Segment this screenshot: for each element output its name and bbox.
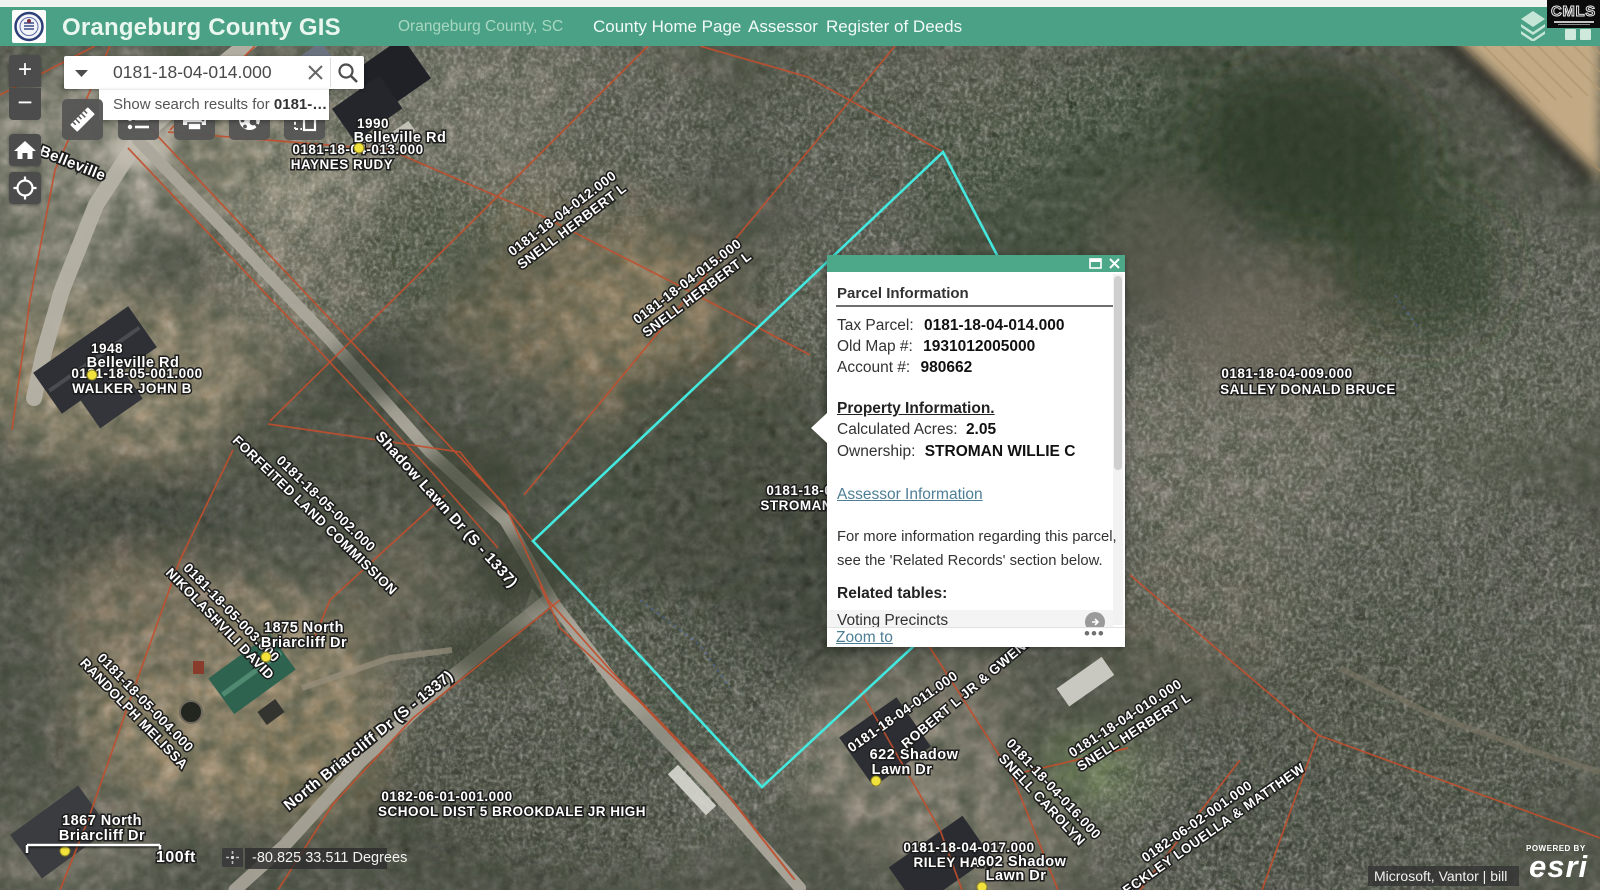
svg-text:0181-18-04-009.000: 0181-18-04-009.000 [1221,366,1352,381]
svg-text:0182-06-01-001.000: 0182-06-01-001.000 [381,789,512,804]
svg-text:Lawn Dr: Lawn Dr [872,762,933,778]
svg-text:Lawn Dr: Lawn Dr [986,868,1047,884]
svg-text:100ft: 100ft [156,849,196,866]
svg-text:HAYNES RUDY: HAYNES RUDY [291,157,394,172]
svg-text:Briarcliff Dr: Briarcliff Dr [59,828,145,844]
svg-text:1867 North: 1867 North [62,813,142,829]
svg-text:Briarcliff Dr: Briarcliff Dr [261,635,347,651]
svg-text:1875 North: 1875 North [264,620,344,636]
svg-text:SALLEY DONALD BRUCE: SALLEY DONALD BRUCE [1220,382,1396,397]
svg-text:0181-18-04-017.000: 0181-18-04-017.000 [903,840,1034,855]
svg-text:SCHOOL DIST 5 BROOKDALE JR HIG: SCHOOL DIST 5 BROOKDALE JR HIGH [378,804,646,819]
svg-text:1990: 1990 [357,116,389,131]
svg-text:622 Shadow: 622 Shadow [870,747,959,763]
svg-text:1948: 1948 [91,341,123,356]
svg-text:WALKER JOHN B: WALKER JOHN B [72,381,192,396]
